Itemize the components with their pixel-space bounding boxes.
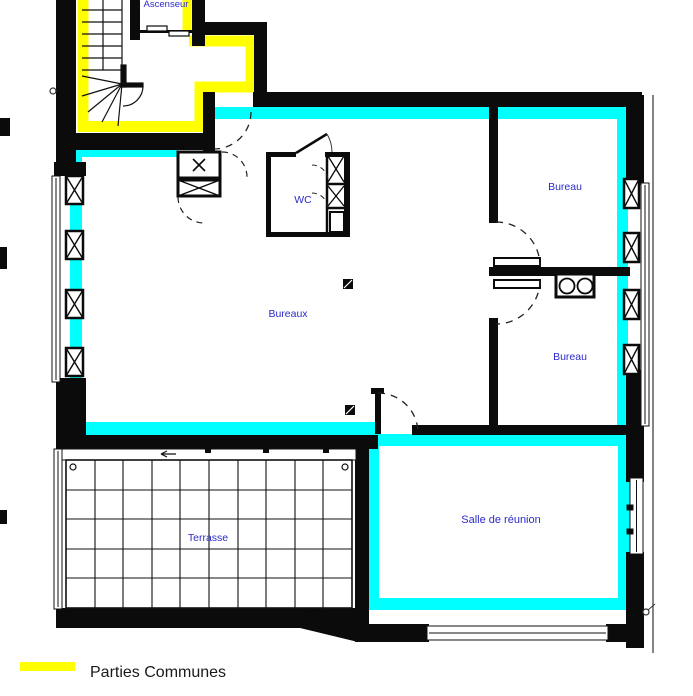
sink-basin [578,279,593,294]
label-bureau-top: Bureau [548,181,582,193]
bureau-door-leaf [494,258,540,266]
wall-segment [489,318,498,428]
floor-plan-drawing: Ascenseur WC Bureau Bureaux Bureau Salle… [0,0,693,696]
window-mullion-notch [627,505,633,510]
doors [178,112,540,434]
wall-segment [56,378,86,436]
columns [343,279,355,415]
highlight-band [70,422,378,435]
wc-door-swing [327,134,332,152]
wall-segment [626,95,644,185]
mullion-box [66,290,83,318]
slider-tick [205,447,211,453]
wall-segment [130,0,140,40]
wall-segment [54,162,86,176]
wall-segment [192,0,205,46]
wc-room [266,134,350,237]
duct-access-swing [222,152,247,177]
label-bureau-bottom: Bureau [553,351,587,363]
mullion-box [66,348,83,376]
wall-segment [56,133,214,150]
slider-tick [263,447,269,453]
mullion-box [66,231,83,259]
sink-basin [560,279,575,294]
mullion-box [624,345,639,374]
railing-post [70,464,76,470]
stair-newel [121,83,143,87]
floor-plan-canvas: Ascenseur WC Bureau Bureaux Bureau Salle… [0,0,693,696]
elevator-door-panel [147,26,167,31]
duct-access-swing [178,197,204,223]
wall-segment [254,22,267,100]
wall-segment [203,92,215,154]
window-mullion-notch [627,529,633,534]
neighbor-wall-tick [0,510,7,524]
mullion-box [66,176,83,204]
wall-segment [355,435,369,638]
legend-swatch-common [20,662,75,671]
duct-access-swing [312,165,328,181]
handrail-curve [123,86,143,106]
neighbor-wall-tick [0,247,7,269]
label-salle-reunion: Salle de réunion [461,514,541,526]
wall-segment [253,92,642,107]
mullion-box [624,233,639,262]
wall-segment [412,425,642,435]
walls [0,0,644,648]
wc-door-leaf [296,134,327,153]
mullion-box [624,179,639,208]
mullion-box [624,290,639,319]
label-terrasse: Terrasse [188,532,228,544]
survey-marker [50,88,56,94]
bureau-door-leaf [494,280,540,288]
label-ascenseur: Ascenseur [144,0,189,10]
label-wc: WC [294,194,312,206]
railing-post [342,464,348,470]
legend: Parties Communes [20,662,226,681]
wall-segment [56,435,378,449]
wall-segment [355,624,429,642]
terrace-grid [66,447,352,608]
wall-segment [489,107,498,223]
sink-fixture [556,274,594,297]
duct-access-swing [312,193,328,209]
elevator-door-panel [169,31,189,36]
highlight-band [367,434,630,446]
highlight-band [215,107,628,119]
legend-label-common: Parties Communes [90,664,226,681]
neighbor-wall-tick [0,118,10,136]
duct-shafts [178,152,220,196]
wall-segment [606,624,644,642]
highlight-band [367,598,630,610]
label-bureaux: Bureaux [268,308,308,320]
wc-wall [266,152,271,237]
slider-tick [323,447,329,453]
salle-door-leaf [375,390,381,434]
